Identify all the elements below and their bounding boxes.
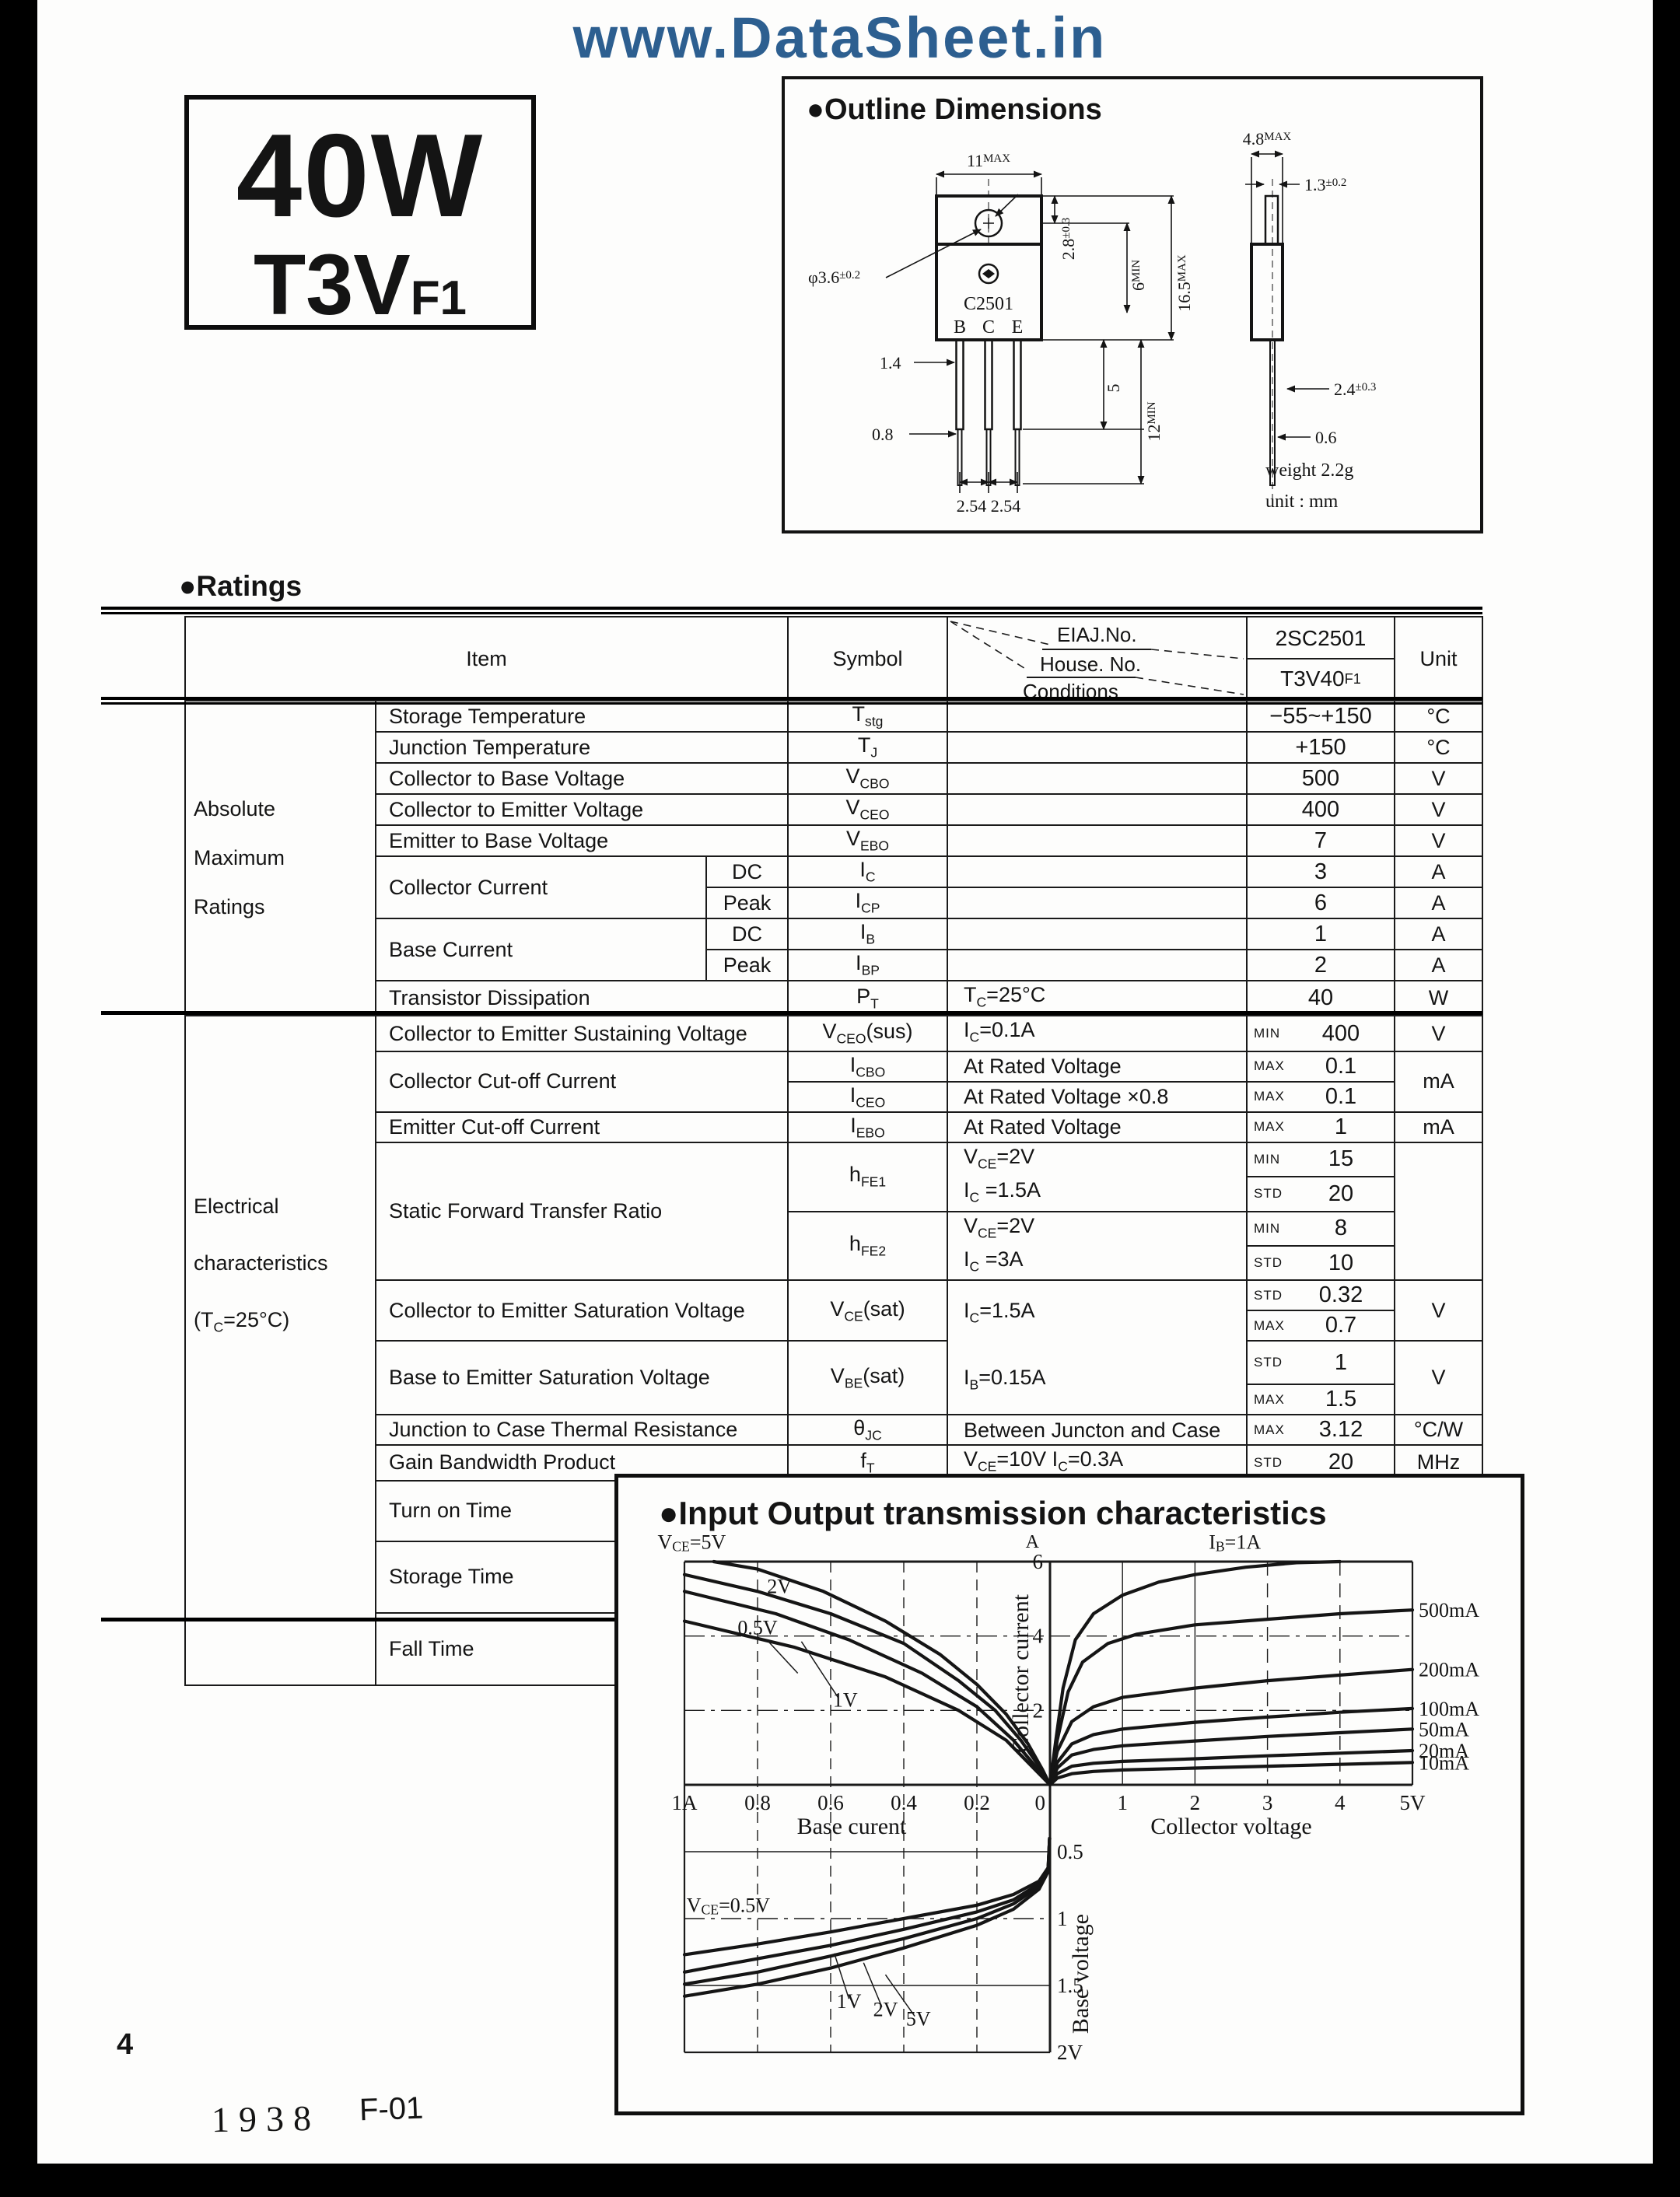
grade-label: MAX: [1248, 1058, 1296, 1074]
part-number-box: 40W T3VF1: [184, 95, 536, 330]
x-tick-label: 1: [1117, 1791, 1128, 1814]
table-cell-val: MAX1.5: [1247, 1384, 1395, 1415]
table-cell-sym: ICEO: [788, 1082, 947, 1112]
x-tick-label: 0.8: [744, 1791, 771, 1814]
table-cell-sym: VCEO(sus): [788, 1016, 947, 1051]
unit-note: unit : mm: [1265, 492, 1339, 512]
dim-seat: 2.4±0.3: [1334, 380, 1376, 399]
dim-lead-pitch: 2.54 2.54: [957, 496, 1021, 516]
table-row: Emitter Cut-off CurrentIEBOAt Rated Volt…: [185, 1112, 1482, 1142]
table-cell-sym: TJ: [788, 732, 947, 763]
table-cell-cond: [947, 701, 1247, 732]
dim-lead-width: 1.4: [880, 353, 901, 373]
manufacturer-logo-icon: [982, 269, 995, 278]
rating-value: 1: [1296, 1350, 1394, 1376]
rating-value: 0.1: [1296, 1054, 1394, 1079]
y-tick-label: 2V: [1057, 2041, 1083, 2064]
x-tick-label: 2: [1190, 1791, 1201, 1814]
grade-label: MIN: [1248, 1026, 1296, 1041]
grade-label: STD: [1248, 1255, 1296, 1271]
table-row: Collector Cut-off CurrentICBOAt Rated Vo…: [185, 1051, 1482, 1082]
chart-annotation: 2V: [767, 1576, 792, 1598]
series-label: 500mA: [1419, 1599, 1479, 1622]
table-cell-cond: [947, 732, 1247, 763]
table-cell-item: Collector to Emitter Sustaining Voltage: [376, 1016, 788, 1051]
table-cell-unit: V: [1395, 1016, 1482, 1051]
table-cell-item: Collector to Emitter Saturation Voltage: [376, 1280, 788, 1341]
dim-hole-diameter: φ3.6±0.2: [808, 268, 860, 287]
rating-value: 400: [1296, 1021, 1394, 1047]
table-header-rule: [101, 697, 1482, 705]
table-cell-cond: [947, 856, 1247, 887]
table-row: Electricalcharacteristics(TC=25°C)Collec…: [185, 1016, 1482, 1051]
table-row: Collector CurrentDCIC3A: [185, 856, 1482, 887]
chart-annotation: 5V: [906, 2008, 931, 2031]
table-cell-unit: V: [1395, 825, 1482, 856]
rating-value: 0.32: [1296, 1282, 1394, 1308]
header-eiaj: EIAJ.No.: [1057, 623, 1137, 647]
table-cell-val: 6: [1247, 887, 1395, 918]
rating-value: 15: [1296, 1146, 1394, 1172]
part-name-suffix: F1: [411, 271, 467, 325]
grade-label: STD: [1248, 1355, 1296, 1370]
table-cell-val: STD0.32: [1247, 1280, 1395, 1310]
diagonal-header: EIAJ.No.House. No.Conditions: [948, 618, 1246, 699]
table-cell-sym: VBE(sat): [788, 1341, 947, 1415]
table-row: Junction TemperatureTJ+150°C: [185, 732, 1482, 763]
group-label-line: Absolute: [194, 797, 375, 821]
series-label: 100mA: [1419, 1698, 1479, 1720]
series-label: 50mA: [1419, 1718, 1469, 1740]
y-axis-unit: A: [1026, 1532, 1040, 1552]
rating-value: 6: [1248, 890, 1394, 916]
chart-annotation: IB=1A: [1209, 1531, 1261, 1554]
table-cell-item: Emitter Cut-off Current: [376, 1112, 788, 1142]
dimension-lines: [886, 154, 1329, 493]
scan-edge-right: [1653, 0, 1680, 2197]
table-cell-sub: DC: [706, 856, 788, 887]
grade-label: MAX: [1248, 1392, 1296, 1408]
y-tick-label: 0.5: [1057, 1840, 1083, 1863]
table-cell-item: Static Forward Transfer Ratio: [376, 1142, 788, 1281]
table-cell-unit: °C: [1395, 732, 1482, 763]
dim-hole-top: 6MIN: [1129, 260, 1148, 291]
grade-label: MIN: [1248, 1221, 1296, 1237]
table-row: Collector to Emitter VoltageVCEO400V: [185, 794, 1482, 825]
grade-label: STD: [1248, 1186, 1296, 1202]
table-cell-grp: Electricalcharacteristics(TC=25°C): [185, 1016, 376, 1685]
outline-drawing: 11MAX 2.8±0.3 6MIN 16.5MAX φ3.6±0.2 5 12…: [785, 79, 1480, 530]
table-row: AbsoluteMaximumRatingsStorage Temperatur…: [185, 701, 1482, 732]
table-cell-cond: IC=1.5AIB=0.15A: [947, 1280, 1247, 1415]
table-cell-unit: °C/W: [1395, 1415, 1482, 1445]
rating-value: 20: [1296, 1181, 1394, 1207]
table-cell-val: −55~+150: [1247, 701, 1395, 732]
table-row: Junction to Case Thermal ResistanceθJCBe…: [185, 1415, 1482, 1445]
part-name: T3VF1: [189, 243, 531, 328]
table-cell-item: Collector to Emitter Voltage: [376, 794, 788, 825]
table-cell-val: MIN400: [1247, 1016, 1395, 1051]
rating-value: 2: [1248, 953, 1394, 978]
table-cell-unit: V: [1395, 1341, 1482, 1415]
chart-annotation: 0.5V: [737, 1616, 778, 1639]
table-cell-val: MAX0.1: [1247, 1051, 1395, 1082]
header-unit: Unit: [1395, 617, 1482, 701]
table-cell-sym: VEBO: [788, 825, 947, 856]
table-cell-item: Collector Current: [376, 856, 706, 918]
table-cell-unit: V: [1395, 794, 1482, 825]
table-cell-val: STD1: [1247, 1341, 1395, 1384]
table-cell-val: +150: [1247, 732, 1395, 763]
dim-body-width: 11MAX: [967, 151, 1010, 170]
table-cell-sym: IB: [788, 918, 947, 950]
rating-value: 3: [1248, 859, 1394, 885]
house-number: T3V40F1: [1248, 659, 1394, 698]
footer-code: F-01: [359, 2091, 424, 2129]
table-cell-val: MAX0.7: [1247, 1310, 1395, 1341]
dim-lead-thick: 0.6: [1315, 428, 1337, 447]
grade-label: MIN: [1248, 1152, 1296, 1167]
table-cell-sym: VCEO: [788, 794, 947, 825]
table-cell-cond: VCE=2VIC =1.5A: [947, 1142, 1247, 1212]
table-cell-unit: mA: [1395, 1051, 1482, 1112]
table-cell-cond: [947, 794, 1247, 825]
grade-label: MAX: [1248, 1089, 1296, 1104]
date-stamp: 1938: [212, 2097, 321, 2140]
table-cell-sym: hFE2: [788, 1212, 947, 1281]
table-cell-item: Junction Temperature: [376, 732, 788, 763]
chart-annotation: 1V: [833, 1689, 858, 1712]
rating-value: 7: [1248, 828, 1394, 854]
dim-body-height: 16.5MAX: [1174, 254, 1194, 312]
rating-value: 0.7: [1296, 1313, 1394, 1338]
table-cell-val: STD20: [1247, 1177, 1395, 1211]
rating-value: 8: [1296, 1216, 1394, 1241]
table-cell-cond: At Rated Voltage: [947, 1051, 1247, 1082]
table-cell-sub: Peak: [706, 950, 788, 981]
grade-label: MAX: [1248, 1422, 1296, 1438]
table-cell-val: 1: [1247, 918, 1395, 950]
rating-value: 3.12: [1296, 1417, 1394, 1443]
table-cell-unit: V: [1395, 1280, 1482, 1341]
header-symbol: Symbol: [788, 617, 947, 701]
table-cell-cond: Between Juncton and Case: [947, 1415, 1247, 1445]
x-tick-label: 1A: [672, 1791, 698, 1814]
watermark-text: www.DataSheet.in: [573, 5, 1108, 71]
table-cell-val: MAX0.1: [1247, 1082, 1395, 1112]
scan-edge-bottom: [0, 2164, 1680, 2197]
table-cell-sym: θJC: [788, 1415, 947, 1445]
table-row: Emitter to Base VoltageVEBO7V: [185, 825, 1482, 856]
rating-value: 10: [1296, 1251, 1394, 1276]
x-tick-label: 0.6: [817, 1791, 844, 1814]
table-cell-sub: DC: [706, 918, 788, 950]
rating-value: 1: [1248, 922, 1394, 947]
table-cell-item: Junction to Case Thermal Resistance: [376, 1415, 788, 1445]
pin-label-c: C: [982, 317, 995, 338]
ratings-title-text: Ratings: [196, 570, 302, 602]
table-cell-item: Base Current: [376, 918, 706, 981]
table-cell-cond: IC=0.1A: [947, 1016, 1247, 1051]
x-tick-zero: 0: [1035, 1791, 1046, 1814]
rating-value: 500: [1248, 766, 1394, 792]
table-cell-sym: VCE(sat): [788, 1280, 947, 1341]
rating-value: 0.1: [1296, 1084, 1394, 1110]
table-cell-cond: VCE=2VIC =3A: [947, 1212, 1247, 1281]
grade-label: STD: [1248, 1288, 1296, 1303]
table-cell-sub: Peak: [706, 887, 788, 918]
header-type-number: 2SC2501T3V40F1: [1247, 617, 1395, 701]
transmission-chart: 500mA200mA100mA50mA20mA10mAVCE=5V2V0.5V1…: [618, 1478, 1521, 2111]
axis-title-collector-voltage: Collector voltage: [1150, 1814, 1311, 1839]
table-cell-cond: At Rated Voltage ×0.8: [947, 1082, 1247, 1112]
table-cell-unit: A: [1395, 856, 1482, 887]
rating-value: −55~+150: [1248, 704, 1394, 729]
table-cell-val: MIN8: [1247, 1212, 1395, 1246]
rating-value: 20: [1296, 1450, 1394, 1475]
table-row: Base CurrentDCIB1A: [185, 918, 1482, 950]
y-tick-label: 2: [1033, 1698, 1044, 1722]
header-item: Item: [185, 617, 788, 701]
table-cell-unit: mA: [1395, 1112, 1482, 1142]
page-number: 4: [117, 2028, 133, 2062]
axis-title-collector-current: Collector current: [1008, 1594, 1034, 1753]
table-cell-cond: [947, 950, 1247, 981]
table-cell-item: Emitter to Base Voltage: [376, 825, 788, 856]
table-header-row: ItemSymbolEIAJ.No.House. No.Conditions2S…: [185, 617, 1482, 701]
dim-lead-tip: 0.8: [872, 425, 894, 444]
table-cell-unit: [1395, 1142, 1482, 1281]
y-tick-label: 6: [1033, 1550, 1044, 1573]
table-cell-cond: At Rated Voltage: [947, 1112, 1247, 1142]
annotation-leader: [801, 1642, 838, 1698]
series-label: 200mA: [1419, 1659, 1479, 1681]
x-tick-label: 0.4: [891, 1791, 917, 1814]
table-cell-item: Collector to Base Voltage: [376, 763, 788, 794]
chart-annotation: VCE=0.5V: [687, 1894, 771, 1917]
grade-label: MAX: [1248, 1119, 1296, 1135]
table-cell-item: Base to Emitter Saturation Voltage: [376, 1341, 788, 1415]
table-cell-sym: IEBO: [788, 1112, 947, 1142]
datasheet-page: www.DataSheet.in 40W T3VF1 ●Outline Dime…: [0, 0, 1680, 2197]
group-label-line: characteristics: [194, 1251, 375, 1275]
table-cell-grp: AbsoluteMaximumRatings: [185, 701, 376, 1016]
table-cell-unit: °C: [1395, 701, 1482, 732]
table-cell-sym: IBP: [788, 950, 947, 981]
series-label: 10mA: [1419, 1751, 1469, 1774]
rating-value: 1: [1296, 1114, 1394, 1140]
table-cell-sym: ICP: [788, 887, 947, 918]
chart-panel: ●Input Output transmission characteristi…: [614, 1474, 1524, 2115]
table-cell-unit: A: [1395, 887, 1482, 918]
table-cell-unit: A: [1395, 918, 1482, 950]
x-tick-label: 5V: [1400, 1791, 1426, 1814]
section-bullet-icon: ●: [179, 570, 196, 602]
chart-annotation: 2V: [873, 1999, 898, 2021]
x-tick-label: 0.2: [964, 1791, 990, 1814]
package-marking: C2501: [964, 294, 1013, 314]
table-cell-sym: hFE1: [788, 1142, 947, 1212]
table-row: Collector to Base VoltageVCBO500V: [185, 763, 1482, 794]
table-cell-val: MIN15: [1247, 1142, 1395, 1177]
x-tick-label: 4: [1335, 1791, 1346, 1814]
table-row: Collector to Emitter Saturation VoltageV…: [185, 1280, 1482, 1310]
dim-lead-shoulder: 5: [1104, 384, 1123, 393]
axis-title-base-voltage: Base voltage: [1068, 1914, 1094, 2034]
x-tick-label: 3: [1262, 1791, 1273, 1814]
table-cell-unit: A: [1395, 950, 1482, 981]
rating-value: 1.5: [1296, 1387, 1394, 1412]
table-cell-unit: V: [1395, 763, 1482, 794]
table-row: Static Forward Transfer RatiohFE1VCE=2VI…: [185, 1142, 1482, 1177]
group-label-line: Ratings: [194, 895, 375, 919]
table-cell-sym: ICBO: [788, 1051, 947, 1082]
table-cell-cond: [947, 918, 1247, 950]
chart-annotation: 1V: [837, 1990, 862, 2013]
table-cell-val: MAX1: [1247, 1112, 1395, 1142]
header-house: House. No.: [1040, 652, 1141, 677]
table-cell-cond: [947, 825, 1247, 856]
table-cell-item: Collector Cut-off Current: [376, 1051, 788, 1112]
part-name-main: T3V: [254, 237, 411, 333]
rating-value: 40: [1248, 985, 1394, 1011]
table-cell-item: Storage Temperature: [376, 701, 788, 732]
dim-lead-min-length: 12MIN: [1144, 401, 1164, 441]
y-tick-label: 4: [1033, 1625, 1044, 1648]
chart-curve-output: [1050, 1762, 1412, 1785]
group-label-line: Electrical: [194, 1195, 375, 1219]
table-cell-val: 2: [1247, 950, 1395, 981]
scan-edge-left: [0, 0, 37, 2197]
table-cell-val: 500: [1247, 763, 1395, 794]
table-cell-cond: [947, 887, 1247, 918]
table-cell-sym: IC: [788, 856, 947, 887]
outline-dimensions-panel: ●Outline Dimensions: [782, 76, 1483, 534]
table-cell-val: MAX3.12: [1247, 1415, 1395, 1445]
side-view-outline: [1251, 179, 1283, 499]
type-number: 2SC2501: [1248, 619, 1394, 659]
pin-label-e: E: [1012, 317, 1024, 338]
header-conditions-diagonal: EIAJ.No.House. No.Conditions: [947, 617, 1247, 701]
dim-hole-offset: 2.8±0.3: [1059, 218, 1078, 260]
part-power-rating: 40W: [189, 117, 531, 235]
dim-thickness: 4.8MAX: [1243, 129, 1292, 149]
rating-value: +150: [1248, 735, 1394, 761]
table-cell-val: 3: [1247, 856, 1395, 887]
chart-annotation: VCE=5V: [657, 1531, 726, 1554]
table-cell-val: 400: [1247, 794, 1395, 825]
table-cell-sym: VCBO: [788, 763, 947, 794]
group-label-line: (TC=25°C): [194, 1308, 375, 1335]
table-cell-val: 7: [1247, 825, 1395, 856]
rating-value: 400: [1248, 797, 1394, 823]
axis-title-base-current: Base curent: [797, 1814, 907, 1839]
ratings-section-title: ●Ratings: [179, 570, 302, 603]
grade-label: STD: [1248, 1455, 1296, 1471]
group-label-line: Maximum: [194, 846, 375, 870]
table-section-rule: [101, 1011, 1482, 1015]
table-top-rule: [101, 607, 1482, 614]
table-cell-sym: Tstg: [788, 701, 947, 732]
dim-tab-thick: 1.3±0.2: [1304, 175, 1346, 194]
weight-note: weight 2.2g: [1265, 460, 1353, 481]
table-cell-cond: [947, 763, 1247, 794]
pin-label-b: B: [954, 317, 966, 338]
table-cell-val: STD10: [1247, 1246, 1395, 1280]
grade-label: MAX: [1248, 1318, 1296, 1334]
table-row: Base to Emitter Saturation VoltageVBE(sa…: [185, 1341, 1482, 1384]
y-tick-label: 1: [1057, 1907, 1068, 1930]
